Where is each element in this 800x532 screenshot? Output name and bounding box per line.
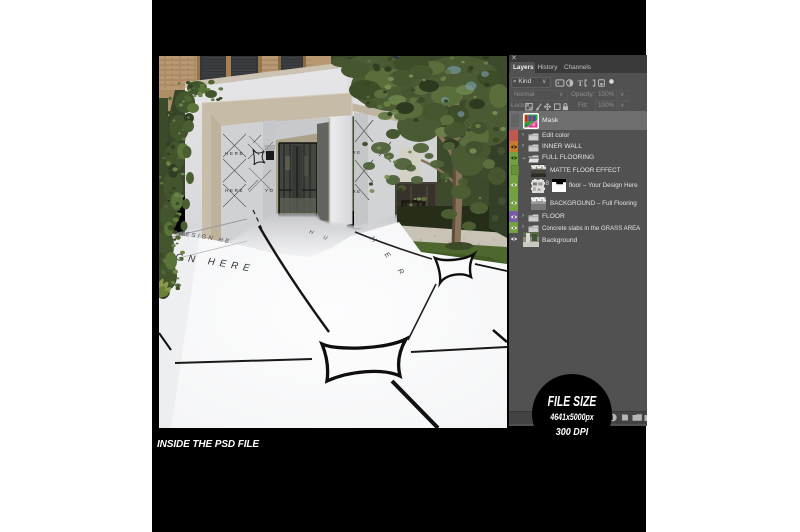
svg-text:RE: RE xyxy=(353,150,362,155)
svg-text:T: T xyxy=(578,79,584,88)
svg-text:YO: YO xyxy=(265,188,274,193)
svg-text:HERE: HERE xyxy=(225,151,244,156)
svg-text:RE: RE xyxy=(353,189,362,194)
svg-text:HERE: HERE xyxy=(225,188,244,193)
